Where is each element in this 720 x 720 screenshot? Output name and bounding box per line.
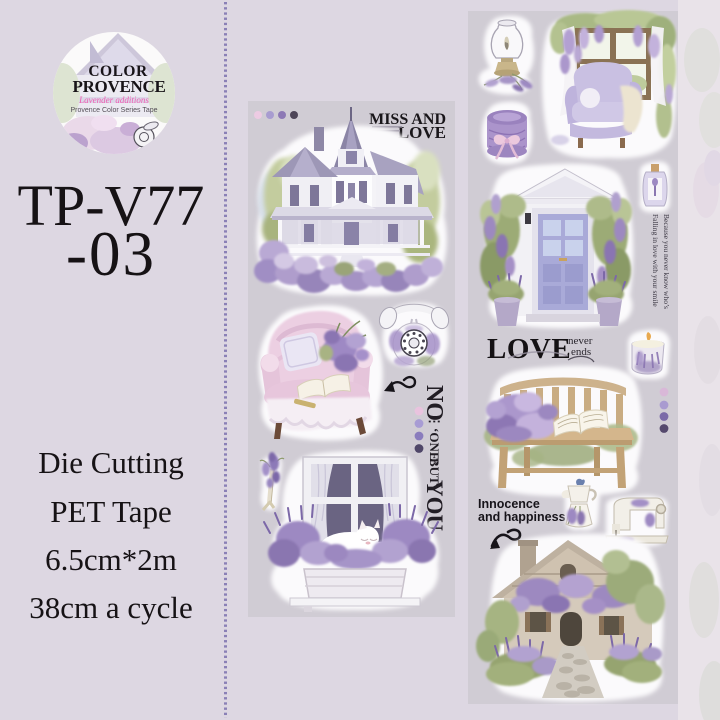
- svg-text:PROVENCE: PROVENCE: [73, 77, 166, 96]
- svg-text:Lavender additions: Lavender additions: [78, 95, 149, 105]
- svg-text:Because you never know who’s: Because you never know who’s: [662, 214, 671, 309]
- svg-text:Innocence: Innocence: [478, 497, 540, 511]
- svg-text:Falling in love with your smil: Falling in love with your smile: [651, 214, 660, 307]
- svg-text:Provence Color Series Tape: Provence Color Series Tape: [70, 107, 157, 114]
- svg-text:LOVE: LOVE: [487, 333, 571, 365]
- svg-text:and happiness: and happiness: [478, 510, 566, 524]
